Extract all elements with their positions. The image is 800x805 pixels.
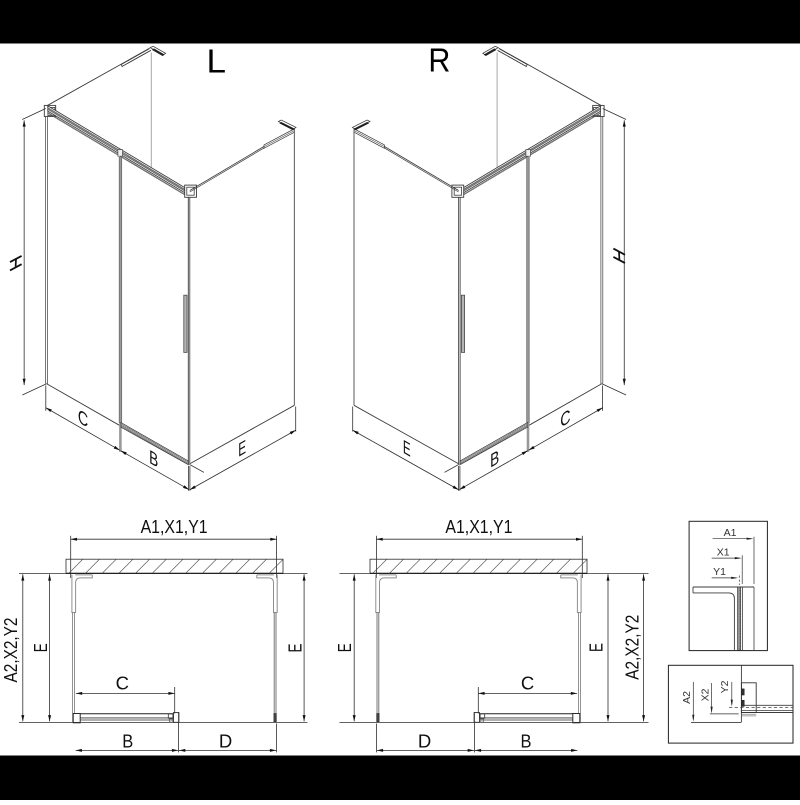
svg-text:Y1: Y1	[713, 566, 726, 578]
svg-text:E: E	[30, 643, 51, 652]
svg-text:X1: X1	[717, 547, 730, 559]
svg-text:B: B	[122, 731, 133, 752]
svg-text:A1,X1,Y1: A1,X1,Y1	[445, 517, 512, 537]
svg-text:D: D	[418, 731, 431, 752]
svg-text:E: E	[334, 643, 355, 652]
svg-text:E: E	[284, 644, 305, 653]
svg-text:A2,X2,Y2: A2,X2,Y2	[623, 615, 643, 680]
svg-text:D: D	[219, 731, 232, 752]
svg-text:E: E	[238, 435, 246, 461]
svg-text:L: L	[207, 43, 227, 80]
svg-text:E: E	[586, 643, 607, 652]
svg-text:R: R	[428, 42, 450, 79]
svg-text:Y2: Y2	[719, 680, 731, 693]
svg-text:A2: A2	[681, 691, 693, 704]
svg-text:C: C	[521, 673, 534, 694]
svg-text:C: C	[116, 673, 129, 694]
svg-text:B: B	[521, 731, 532, 752]
svg-text:A1: A1	[724, 527, 737, 539]
svg-text:E: E	[403, 435, 411, 461]
svg-text:A1,X1,Y1: A1,X1,Y1	[141, 517, 208, 537]
svg-text:X2: X2	[700, 688, 712, 701]
svg-text:A2,X2,Y2: A2,X2,Y2	[1, 618, 21, 683]
